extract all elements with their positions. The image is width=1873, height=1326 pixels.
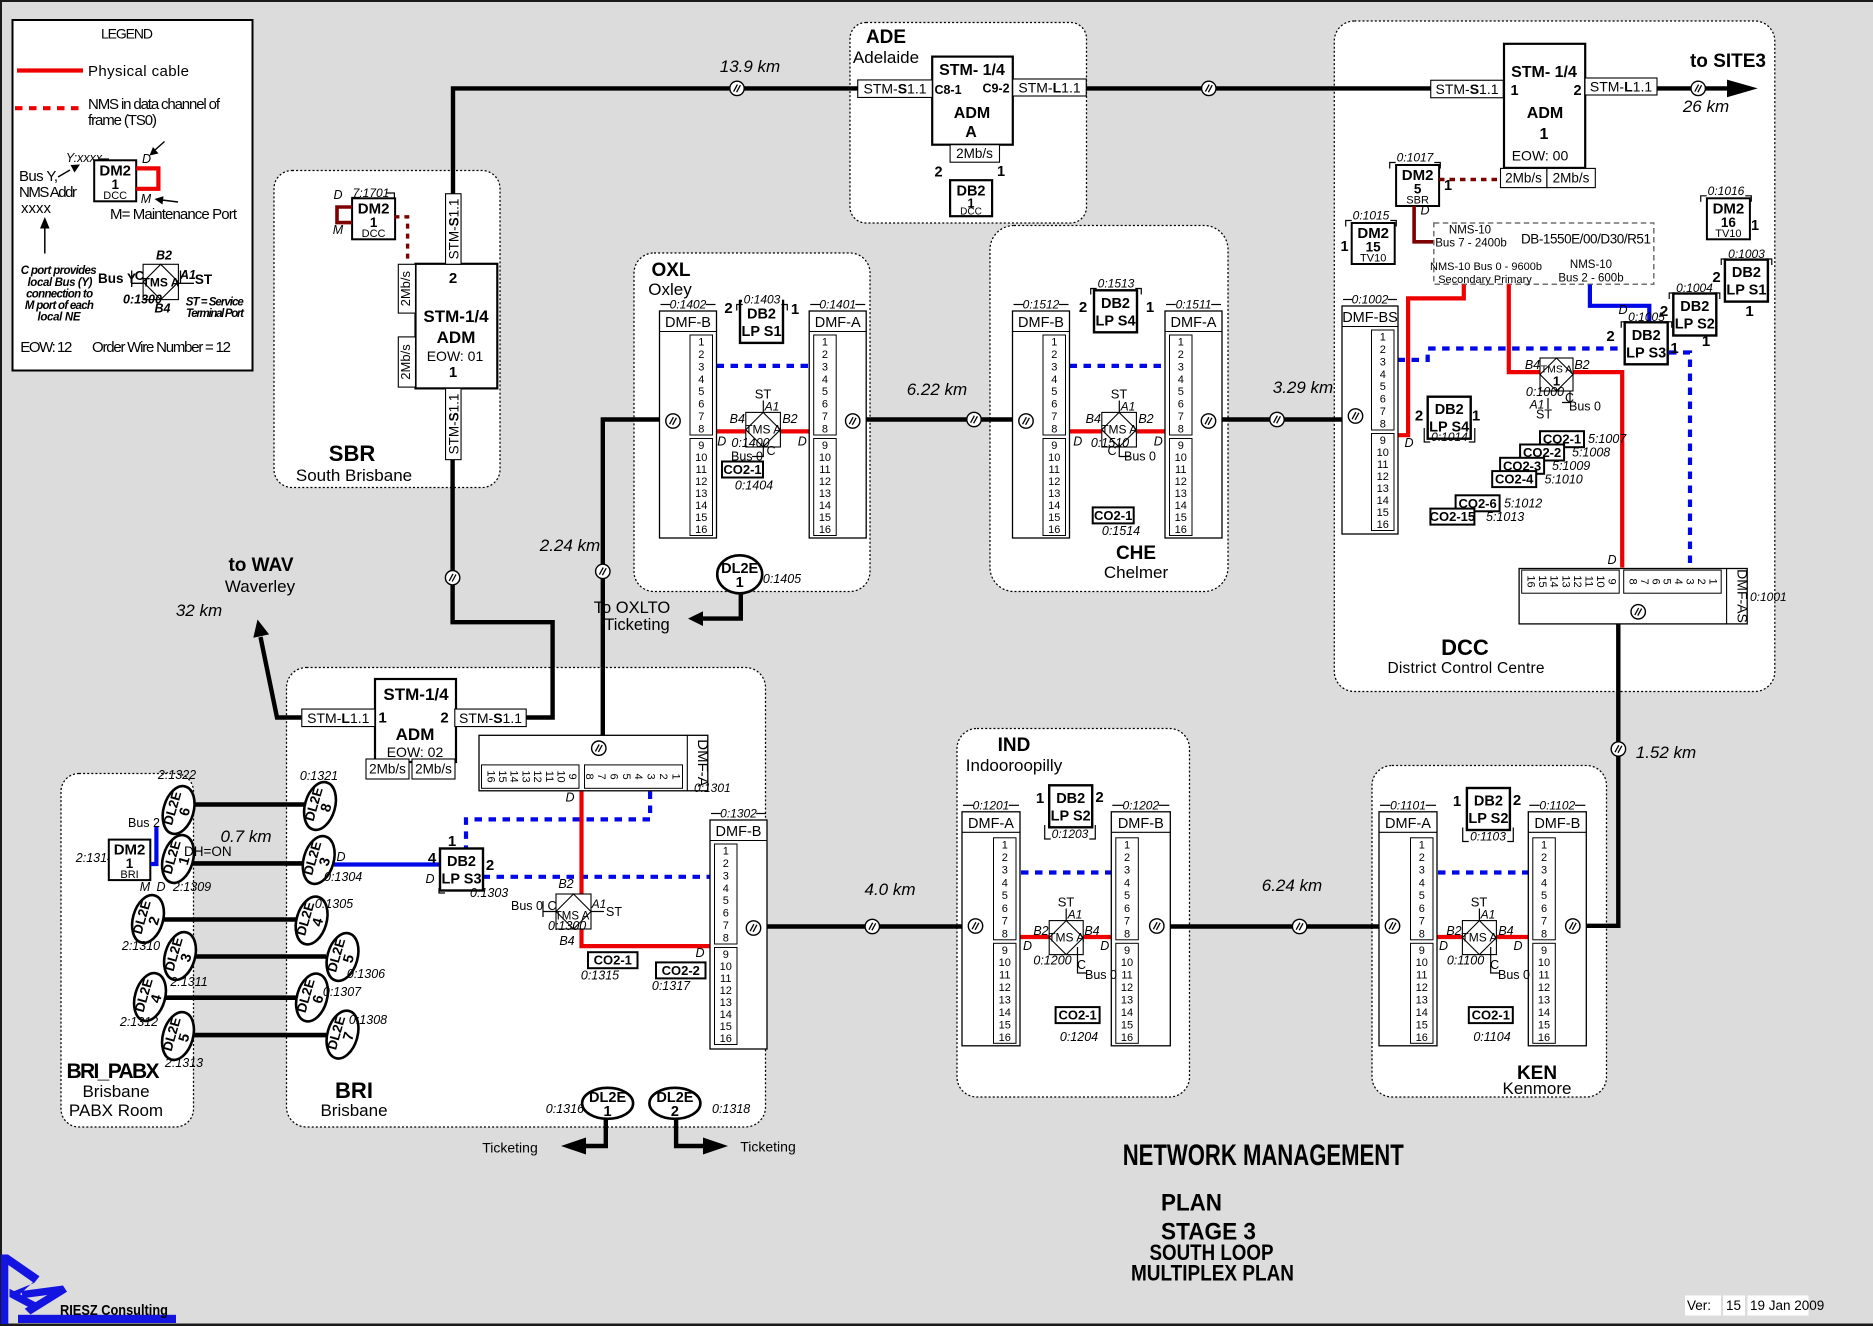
svg-text:2Mb/s: 2Mb/s [956, 146, 993, 161]
svg-text:0:1101: 0:1101 [1390, 798, 1426, 812]
svg-text:B2: B2 [1446, 924, 1461, 938]
svg-text:2: 2 [1415, 408, 1423, 425]
svg-text:District Control Centre: District Control Centre [1388, 660, 1545, 677]
svg-text:B2: B2 [1138, 412, 1153, 426]
svg-text:10: 10 [1377, 447, 1389, 459]
svg-text:Bus 7 - 2400b: Bus 7 - 2400b [1435, 238, 1507, 250]
svg-text:To OXLTO: To OXLTO [594, 599, 671, 617]
svg-text:local NE: local NE [38, 312, 81, 324]
svg-text:CO2-2: CO2-2 [662, 963, 700, 978]
svg-text:Secondary Primary: Secondary Primary [1438, 274, 1532, 286]
svg-text:NMS in data channel of: NMS in data channel of [88, 96, 221, 113]
svg-text:12: 12 [1175, 476, 1187, 488]
svg-text:DCC: DCC [103, 190, 127, 202]
svg-text:1: 1 [822, 337, 828, 349]
svg-text:4: 4 [1672, 578, 1684, 584]
svg-text:5: 5 [1419, 890, 1425, 902]
svg-text:B4: B4 [559, 934, 574, 948]
svg-text:0:1015: 0:1015 [1353, 209, 1390, 223]
svg-text:DMF-AS: DMF-AS [1735, 569, 1751, 623]
svg-text:B2: B2 [782, 412, 797, 426]
svg-text:DB2: DB2 [1101, 296, 1130, 312]
svg-text:5: 5 [822, 386, 828, 398]
svg-text:5:1009: 5:1009 [1552, 459, 1590, 473]
svg-text:C: C [1107, 444, 1116, 458]
svg-text:D: D [1154, 435, 1163, 449]
svg-text:ADM: ADM [437, 328, 476, 347]
svg-text:Ver:: Ver: [1687, 1298, 1711, 1313]
svg-text:10: 10 [555, 770, 567, 782]
svg-text:1: 1 [1036, 790, 1044, 807]
svg-text:NMS-10 Bus 0 - 9600b: NMS-10 Bus 0 - 9600b [1430, 261, 1542, 273]
svg-text:13: 13 [1048, 488, 1060, 500]
svg-text:7: 7 [822, 411, 828, 423]
svg-text:5:1012: 5:1012 [1504, 497, 1542, 511]
svg-text:NETWORK MANAGEMENT: NETWORK MANAGEMENT [1123, 1139, 1404, 1172]
svg-text:TMS A: TMS A [143, 276, 180, 290]
svg-text:6: 6 [1380, 394, 1386, 406]
svg-text:19 Jan 2009: 19 Jan 2009 [1750, 1298, 1824, 1313]
svg-text:NMS-10: NMS-10 [1449, 225, 1491, 237]
svg-text:14: 14 [508, 770, 520, 782]
svg-text:1: 1 [1340, 239, 1348, 255]
svg-text:TMS A: TMS A [1101, 423, 1137, 437]
svg-text:0:1404: 0:1404 [735, 479, 773, 493]
svg-text:STM-L1.1: STM-L1.1 [307, 710, 369, 726]
svg-text:0:1402: 0:1402 [670, 298, 707, 312]
svg-text:15: 15 [1048, 512, 1060, 524]
svg-text:2:1312: 2:1312 [119, 1015, 158, 1029]
svg-text:Bus 0: Bus 0 [1498, 968, 1530, 982]
svg-text:7: 7 [595, 773, 607, 779]
svg-text:Bus 0: Bus 0 [1085, 968, 1117, 982]
svg-text:8: 8 [822, 424, 828, 436]
svg-text:13: 13 [1538, 995, 1550, 1007]
svg-text:13: 13 [1416, 995, 1428, 1007]
svg-text:3: 3 [1684, 578, 1696, 584]
svg-text:11: 11 [1583, 576, 1595, 587]
svg-text:0:1017: 0:1017 [1397, 151, 1435, 165]
svg-text:Bus 2 - 600b: Bus 2 - 600b [1558, 273, 1623, 285]
svg-text:Bus 0: Bus 0 [1124, 450, 1156, 464]
svg-text:14: 14 [1538, 1007, 1550, 1019]
svg-text:4: 4 [428, 850, 437, 867]
svg-text:1: 1 [1453, 793, 1461, 810]
svg-text:2: 2 [1051, 349, 1057, 361]
svg-text:16: 16 [695, 524, 707, 536]
svg-text:6: 6 [1541, 903, 1547, 915]
svg-text:D: D [798, 435, 807, 449]
svg-text:16: 16 [819, 524, 831, 536]
svg-text:D: D [695, 946, 704, 960]
svg-text:BRI: BRI [335, 1078, 373, 1103]
svg-text:0:1321: 0:1321 [300, 769, 338, 783]
svg-text:8: 8 [1178, 424, 1184, 436]
svg-text:32 km: 32 km [176, 601, 222, 620]
svg-text:10: 10 [1594, 575, 1606, 587]
svg-text:15: 15 [819, 512, 831, 524]
svg-text:2Mb/s: 2Mb/s [398, 344, 413, 380]
svg-text:5:1008: 5:1008 [1572, 446, 1610, 460]
svg-text:DMF-B: DMF-B [716, 824, 762, 840]
svg-text:8: 8 [723, 933, 729, 945]
svg-text:CO2-4: CO2-4 [1495, 472, 1534, 487]
svg-text:12: 12 [1121, 982, 1133, 994]
svg-text:Order Wire Number = 12: Order Wire Number = 12 [92, 339, 231, 356]
svg-text:frame (TS0): frame (TS0) [88, 112, 157, 129]
svg-text:3: 3 [645, 773, 657, 779]
svg-text:16: 16 [999, 1032, 1011, 1044]
svg-text:C9-2: C9-2 [982, 82, 1009, 96]
svg-text:STM-L1.1: STM-L1.1 [1590, 79, 1652, 95]
svg-text:B2: B2 [156, 249, 172, 263]
svg-text:0:1511: 0:1511 [1176, 298, 1212, 312]
svg-text:LP S4: LP S4 [1095, 313, 1135, 329]
svg-text:D: D [336, 850, 345, 864]
svg-text:1: 1 [791, 301, 799, 318]
svg-text:to WAV: to WAV [228, 555, 293, 576]
svg-text:0:1315: 0:1315 [581, 969, 619, 983]
svg-text:0:1100: 0:1100 [1447, 954, 1484, 968]
svg-text:D: D [156, 880, 165, 894]
svg-text:1: 1 [1706, 578, 1718, 584]
svg-text:16: 16 [1525, 575, 1537, 587]
svg-text:LP S2: LP S2 [1468, 811, 1508, 827]
svg-text:CO2-1: CO2-1 [1094, 508, 1132, 523]
svg-text:connection to: connection to [26, 289, 93, 301]
svg-text:0:1201: 0:1201 [973, 798, 1010, 812]
svg-text:D: D [1404, 436, 1413, 450]
svg-text:15: 15 [695, 512, 707, 524]
svg-text:7: 7 [723, 920, 729, 932]
svg-text:4: 4 [723, 883, 729, 895]
svg-text:DMF-A: DMF-A [815, 315, 861, 331]
svg-text:MULTIPLEX PLAN: MULTIPLEX PLAN [1131, 1261, 1294, 1286]
svg-text:C: C [766, 444, 775, 458]
svg-text:1: 1 [1419, 839, 1425, 851]
svg-text:DMF-BS: DMF-BS [1342, 310, 1398, 326]
svg-text:11: 11 [1121, 970, 1132, 982]
svg-text:12: 12 [695, 476, 707, 488]
svg-text:15: 15 [1416, 1019, 1428, 1031]
svg-text:2: 2 [934, 165, 942, 181]
svg-text:0:1200: 0:1200 [1033, 954, 1071, 968]
svg-text:A1: A1 [1120, 400, 1136, 414]
svg-text:7: 7 [1178, 411, 1184, 423]
svg-text:CO2-1: CO2-1 [1472, 1008, 1510, 1023]
svg-text:2: 2 [724, 300, 732, 317]
svg-text:D: D [717, 435, 726, 449]
svg-text:TV10: TV10 [1715, 228, 1741, 240]
svg-text:5: 5 [1051, 386, 1057, 398]
svg-text:2: 2 [1124, 852, 1130, 864]
svg-text:2: 2 [1095, 789, 1103, 806]
svg-text:8: 8 [698, 424, 704, 436]
svg-text:D: D [425, 872, 434, 886]
svg-text:ST: ST [606, 905, 622, 919]
svg-text:DMF-B: DMF-B [1118, 816, 1164, 832]
svg-text:B4: B4 [730, 412, 745, 426]
svg-text:1: 1 [997, 164, 1005, 180]
svg-text:STM-L1.1: STM-L1.1 [1018, 80, 1080, 96]
svg-text:15: 15 [999, 1019, 1011, 1031]
svg-text:DB2: DB2 [1680, 299, 1709, 315]
svg-text:14: 14 [1416, 1007, 1428, 1019]
svg-text:10: 10 [1416, 957, 1428, 969]
svg-text:6: 6 [1178, 399, 1184, 411]
svg-text:2: 2 [657, 773, 669, 779]
svg-text:1: 1 [698, 337, 704, 349]
svg-text:local Bus (Y): local Bus (Y) [28, 277, 93, 289]
svg-text:12: 12 [819, 476, 831, 488]
svg-text:4: 4 [1002, 877, 1008, 889]
svg-text:1: 1 [723, 846, 729, 858]
svg-text:STM-S1.1: STM-S1.1 [863, 81, 926, 97]
svg-text:9: 9 [822, 440, 828, 452]
svg-text:0:1002: 0:1002 [1352, 293, 1389, 307]
svg-text:M: M [141, 192, 152, 206]
svg-text:15: 15 [1175, 512, 1187, 524]
svg-text:1.52 km: 1.52 km [1636, 743, 1696, 762]
svg-text:0:1014: 0:1014 [1431, 430, 1468, 444]
svg-text:11: 11 [1377, 459, 1388, 471]
svg-text:STM- 1/4: STM- 1/4 [939, 62, 1005, 79]
svg-text:A1: A1 [179, 268, 196, 282]
svg-text:0:1016: 0:1016 [1708, 184, 1745, 198]
svg-text:4: 4 [1541, 877, 1547, 889]
svg-text:13: 13 [1175, 488, 1187, 500]
svg-text:14: 14 [1048, 500, 1060, 512]
svg-text:2Mb/s: 2Mb/s [398, 271, 413, 307]
svg-text:NMS-10: NMS-10 [1570, 259, 1612, 271]
svg-text:A1: A1 [1480, 908, 1496, 922]
svg-text:SBR: SBR [329, 441, 376, 466]
svg-text:EOW: 02: EOW: 02 [387, 744, 444, 760]
svg-text:STM-S1.1: STM-S1.1 [446, 394, 461, 455]
svg-text:1: 1 [604, 1104, 612, 1120]
svg-text:PABX Room: PABX Room [69, 1101, 163, 1120]
svg-text:2: 2 [1695, 578, 1707, 584]
svg-text:2:1322: 2:1322 [157, 768, 196, 782]
svg-text:12: 12 [1048, 476, 1060, 488]
svg-text:D: D [1420, 204, 1429, 218]
svg-text:DB2: DB2 [747, 306, 776, 322]
svg-text:16: 16 [1048, 524, 1060, 536]
svg-text:1: 1 [1670, 340, 1678, 357]
svg-text:13: 13 [695, 488, 707, 500]
svg-text:6.22 km: 6.22 km [907, 380, 967, 399]
svg-text:4: 4 [698, 374, 704, 386]
svg-text:15: 15 [1377, 507, 1389, 519]
svg-text:3: 3 [1419, 865, 1425, 877]
svg-text:14: 14 [1548, 575, 1560, 587]
svg-text:1: 1 [1380, 332, 1386, 344]
svg-text:TV10: TV10 [1360, 253, 1386, 265]
svg-text:2: 2 [1178, 349, 1184, 361]
svg-text:M port of each: M port of each [25, 300, 94, 312]
svg-text:14: 14 [695, 500, 707, 512]
svg-text:South Brisbane: South Brisbane [296, 466, 412, 485]
svg-text:LEGEND: LEGEND [101, 26, 153, 42]
svg-text:4: 4 [1051, 374, 1057, 386]
svg-text:0:1300: 0:1300 [548, 919, 586, 933]
svg-text:EOW: 01: EOW: 01 [427, 348, 484, 364]
svg-text:2: 2 [1573, 83, 1581, 99]
svg-text:Ticketing: Ticketing [740, 1139, 796, 1155]
svg-text:3.29 km: 3.29 km [1273, 378, 1333, 397]
svg-text:6: 6 [698, 399, 704, 411]
svg-text:2: 2 [1419, 852, 1425, 864]
svg-text:DMF-A: DMF-A [968, 816, 1014, 832]
svg-text:5: 5 [1002, 890, 1008, 902]
svg-text:0:1304: 0:1304 [324, 870, 362, 884]
svg-text:0:1103: 0:1103 [1470, 830, 1506, 844]
svg-text:STM-S1.1: STM-S1.1 [446, 199, 461, 260]
svg-text:A1: A1 [1067, 908, 1083, 922]
svg-text:1: 1 [1124, 839, 1130, 851]
svg-text:13: 13 [1121, 995, 1133, 1007]
svg-text:2: 2 [1002, 852, 1008, 864]
svg-text:9: 9 [1419, 945, 1425, 957]
svg-text:5:1013: 5:1013 [1486, 510, 1524, 524]
svg-text:Oxley: Oxley [648, 280, 692, 299]
svg-text:11: 11 [720, 973, 731, 985]
svg-text:16: 16 [1121, 1032, 1133, 1044]
svg-text:11: 11 [1175, 464, 1186, 476]
svg-text:4: 4 [632, 773, 644, 779]
svg-text:6.24 km: 6.24 km [1262, 876, 1322, 895]
svg-text:8: 8 [583, 773, 595, 779]
svg-text:D: D [1100, 939, 1109, 953]
svg-text:2:1311: 2:1311 [169, 975, 207, 989]
svg-text:B4: B4 [155, 301, 171, 315]
svg-text:9: 9 [1380, 435, 1386, 447]
svg-text:13: 13 [999, 995, 1011, 1007]
svg-text:1: 1 [736, 575, 744, 591]
svg-text:6: 6 [1419, 903, 1425, 915]
svg-text:A: A [965, 124, 977, 141]
svg-text:2Mb/s: 2Mb/s [1505, 171, 1542, 186]
svg-text:A1: A1 [591, 897, 607, 911]
svg-text:1: 1 [1540, 126, 1549, 143]
svg-text:12: 12 [720, 985, 732, 997]
svg-text:6: 6 [723, 908, 729, 920]
svg-text:10: 10 [1538, 957, 1550, 969]
svg-text:Adelaide: Adelaide [853, 48, 919, 67]
svg-text:DB2: DB2 [1474, 794, 1503, 810]
svg-text:15: 15 [1121, 1019, 1133, 1031]
svg-text:C8-1: C8-1 [934, 83, 961, 97]
svg-text:EOW: 00: EOW: 00 [1512, 148, 1569, 164]
svg-text:2Mb/s: 2Mb/s [1553, 171, 1590, 186]
svg-text:11: 11 [999, 970, 1010, 982]
svg-text:11: 11 [543, 771, 555, 782]
svg-text:1: 1 [1751, 218, 1759, 234]
svg-text:DCC: DCC [1441, 635, 1489, 660]
svg-text:14: 14 [720, 1009, 732, 1021]
svg-text:1: 1 [1745, 303, 1753, 320]
svg-text:0:1514: 0:1514 [1102, 524, 1140, 538]
svg-text:16: 16 [1538, 1032, 1550, 1044]
svg-text:0:1301: 0:1301 [694, 781, 731, 795]
svg-text:Terminal Port: Terminal Port [186, 308, 245, 320]
svg-text:D: D [565, 791, 574, 805]
svg-text:8: 8 [1124, 928, 1130, 940]
svg-text:14: 14 [1121, 1007, 1133, 1019]
svg-text:D: D [1513, 939, 1522, 953]
svg-text:DMF-A: DMF-A [1385, 816, 1431, 832]
svg-text:11: 11 [696, 464, 707, 476]
svg-text:LP S2: LP S2 [1051, 808, 1091, 824]
svg-text:9: 9 [698, 440, 704, 452]
svg-text:B2: B2 [1033, 924, 1048, 938]
svg-text:26 km: 26 km [1682, 97, 1729, 116]
svg-text:8: 8 [1002, 928, 1008, 940]
svg-text:7: 7 [1051, 411, 1057, 423]
svg-text:5: 5 [1178, 386, 1184, 398]
svg-text:14: 14 [1377, 495, 1389, 507]
svg-text:LP S1: LP S1 [741, 324, 781, 340]
svg-text:0:1306: 0:1306 [347, 967, 385, 981]
svg-text:Bus 0: Bus 0 [511, 899, 543, 913]
svg-text:9: 9 [1541, 945, 1547, 957]
svg-text:11: 11 [1416, 970, 1427, 982]
svg-text:M= Maintenance Port: M= Maintenance Port [110, 206, 238, 223]
svg-text:ST = Service: ST = Service [186, 297, 245, 309]
svg-text:D: D [333, 188, 342, 202]
svg-text:2: 2 [1712, 269, 1720, 286]
svg-text:11: 11 [1049, 464, 1060, 476]
svg-text:DMF-A: DMF-A [1171, 315, 1217, 331]
svg-text:6: 6 [1124, 903, 1130, 915]
svg-text:NMS Addr: NMS Addr [19, 184, 77, 201]
svg-text:7: 7 [698, 411, 704, 423]
svg-text:16: 16 [1175, 524, 1187, 536]
svg-text:10: 10 [720, 961, 732, 973]
svg-text:IND: IND [998, 735, 1031, 756]
svg-text:12: 12 [531, 770, 543, 782]
svg-text:2:1310: 2:1310 [121, 939, 160, 953]
svg-text:Bus 2: Bus 2 [128, 816, 160, 830]
svg-text:RIESZ Consulting: RIESZ Consulting [60, 1302, 168, 1319]
svg-text:4: 4 [1380, 369, 1386, 381]
svg-text:1: 1 [1051, 337, 1057, 349]
svg-text:B2: B2 [1574, 358, 1589, 372]
svg-text:4: 4 [1419, 877, 1425, 889]
svg-text:D: D [1073, 435, 1082, 449]
svg-text:2Mb/s: 2Mb/s [369, 762, 406, 777]
svg-text:9: 9 [566, 773, 578, 779]
svg-text:3: 3 [1002, 865, 1008, 877]
svg-text:to SITE3: to SITE3 [1690, 51, 1766, 72]
svg-text:2: 2 [1606, 328, 1614, 345]
svg-text:4.0 km: 4.0 km [864, 880, 915, 899]
svg-text:15: 15 [720, 1021, 732, 1033]
svg-text:DB2: DB2 [1632, 328, 1661, 344]
svg-text:2:1313: 2:1313 [164, 1056, 203, 1070]
svg-text:3: 3 [1178, 361, 1184, 373]
svg-text:3: 3 [1380, 356, 1386, 368]
svg-text:0:1317: 0:1317 [652, 979, 691, 993]
svg-text:STM-S1.1: STM-S1.1 [459, 710, 522, 726]
svg-text:5: 5 [1661, 578, 1673, 584]
svg-text:10: 10 [999, 957, 1011, 969]
svg-text:0:1305: 0:1305 [315, 897, 353, 911]
svg-text:1: 1 [448, 833, 456, 850]
svg-text:6: 6 [822, 399, 828, 411]
svg-text:ADM: ADM [396, 725, 435, 744]
svg-text:8: 8 [1419, 928, 1425, 940]
